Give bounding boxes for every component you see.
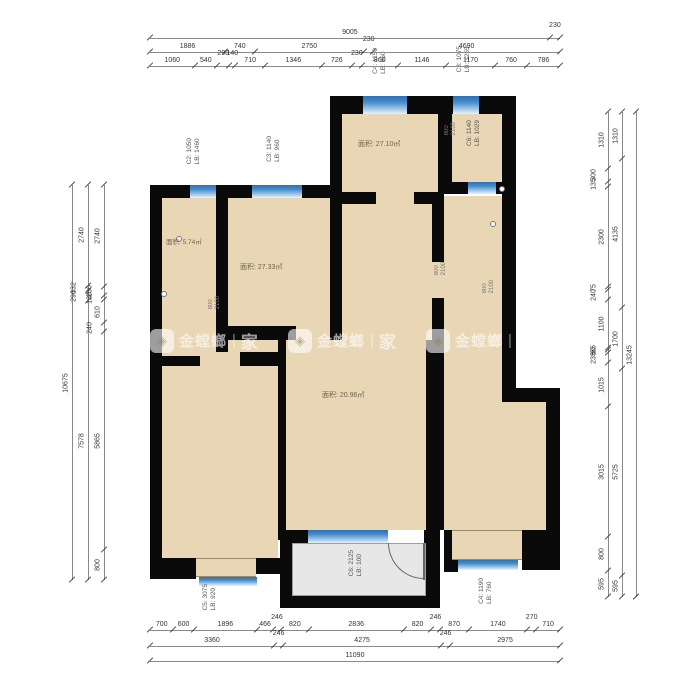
dimension-value: 240 [591,289,598,301]
dimension-tick [69,576,75,582]
dimension-value: 1740 [490,621,506,628]
wall-segment [452,182,468,194]
watermark: ◈ 金螳螂 | 家 [288,328,396,353]
wall-segment [426,530,440,608]
dimension-value: 700 [156,621,168,628]
dimension-value: 600 [178,621,190,628]
door-tag: 8002100 [434,262,448,275]
dimension-value: 246 [271,614,283,621]
dimension-value: 246 [440,630,452,637]
dimension-tick [85,576,91,582]
dimension-value: 235 [591,352,598,364]
dimension-value: 466 [259,621,271,628]
dimension-value: 1886 [180,43,196,50]
bay-ledge-left [196,558,256,577]
dimension-line [88,185,89,580]
bay-ledge-right [452,530,522,560]
window-bottom-right [458,560,518,570]
dimension-value: 860 [374,57,386,64]
wall-segment [432,204,444,262]
dimension-value: 1346 [286,57,302,64]
dimension-value: 710 [244,57,256,64]
wall-segment [407,96,453,114]
room-area-label: 面积: 27.10㎡ [358,139,400,149]
dimension-value: 4275 [354,637,370,644]
dim-row-top-detail: 1060540290140710134672623086011461170760… [150,66,560,67]
dimension-value: 2740 [95,228,102,244]
dim-row-bottom-detail: 7006001896466246820283682024687017402707… [150,630,560,631]
window-top-1 [363,96,407,114]
dimension-value: 240 [87,322,94,334]
dim-col-right-major: 1310413517005725595 [622,112,623,597]
dim-col-right-detail: 1310300135230075240110055602351015301580… [608,112,609,597]
dimension-value: 246 [273,630,285,637]
window-interior-right [468,182,496,194]
dimension-value: 1146 [414,57,429,64]
dimension-tick [619,593,625,599]
door-opening [200,352,240,366]
dimension-value: 1170 [463,57,478,64]
dimension-value: 2836 [348,621,364,628]
dimension-value: 130 [87,292,94,304]
wall-segment [426,340,444,530]
watermark: ◈ 金螳螂 | 家 [426,328,534,353]
wall-segment [282,596,438,608]
watermark-logo-icon: ◈ [150,329,174,353]
dimension-line [622,112,623,597]
dimension-value: 230 [351,50,363,57]
wall-segment [330,114,342,344]
wall-segment [150,185,162,579]
dimension-value: 13245 [627,345,634,364]
fixture-dot [499,186,505,192]
wall-segment [150,558,196,579]
dimension-value: 4135 [613,226,620,242]
room-area-label: 面积: 20.96㎡ [322,390,364,400]
room-area-label: 面积: 5.74㎡ [166,236,202,246]
window-tag: C6: 1140LB: 1029 [466,120,482,146]
window-tag: C3: 1140LB: 960 [266,136,282,162]
door-tag: 8002100 [482,280,496,293]
watermark: ◈ 金螳螂 | 家 [150,328,258,353]
dimension-value: 135 [591,179,598,191]
window-top-2 [453,96,479,114]
window-balcony [308,530,388,543]
wall-segment [342,192,376,204]
room-bedroom-bottom-left [162,366,278,558]
window-tag: C5: 3075LB: 920 [202,584,218,610]
dimension-value: 5865 [95,433,102,449]
window-tag: C6: 2125LB: 100 [348,550,364,576]
dimension-value: 3360 [204,637,220,644]
door-tag: 8002100 [208,296,222,309]
dimension-value: 800 [95,559,102,571]
floor-plan-page: { "colors": { "wall": "#0a0a0a", "room_f… [0,0,700,700]
wall-segment [216,185,252,198]
dimension-value: 1700 [613,331,620,347]
dimension-tick [557,626,563,632]
room-bedroom-top [342,114,438,192]
dimension-value: 595 [599,578,606,590]
wall-segment [330,96,363,114]
dim-row-bottom-overall: 11090 [150,661,560,662]
dimension-value: 726 [331,57,343,64]
dimension-value: 740 [234,43,246,50]
dimension-value: 10675 [63,373,70,392]
dimension-value: 595 [613,580,620,592]
dimension-value: 246 [430,614,442,621]
fixture-dot [490,221,496,227]
dimension-line [150,38,560,39]
dimension-value: 9005 [342,29,358,36]
dim-col-left-detail: 27402301306102405865800 [104,185,105,580]
dimension-value: 11090 [346,652,365,659]
dim-row-bottom-major: 336024642752462975 [150,646,560,647]
dimension-value: 1310 [599,132,606,148]
dimension-line [72,185,73,580]
watermark-logo-icon: ◈ [426,329,450,353]
dimension-tick [557,48,563,54]
dim-col-left-major: 27401322907578 [88,185,89,580]
fixture-dot [161,291,167,297]
dimension-tick [557,642,563,648]
dimension-value: 1015 [599,377,606,393]
dimension-value: 800 [599,548,606,560]
dimension-tick [633,593,639,599]
dimension-line [150,66,560,67]
dimension-value: 786 [538,57,550,64]
room-right [444,196,502,530]
room-right-extension [502,402,546,530]
dimension-value: 1100 [599,316,606,331]
dimension-value: 3015 [599,464,606,480]
dimension-tick [557,657,563,663]
dimension-value: 2975 [497,637,513,644]
dimension-tick [101,576,107,582]
dimension-line [150,661,560,662]
dimension-value: 2740 [79,228,86,244]
dimension-line [150,646,560,647]
wall-segment [546,388,560,536]
dimension-value: 5725 [613,465,620,481]
room-living [286,340,426,530]
dimension-line [104,185,105,580]
dim-col-right-overall: 13245 [636,112,637,597]
dimension-value: 760 [505,57,517,64]
dimension-value: 230 [363,36,375,43]
dim-row-top-overall: 9005230 [150,38,560,39]
dimension-value: 610 [95,306,102,318]
dimension-tick [557,62,563,68]
dimension-value: 540 [200,57,212,64]
dimension-tick [605,593,611,599]
window-tag: C2: 1050LB: 1460 [186,138,202,164]
dimension-value: 1896 [218,621,234,628]
dimension-line [636,112,637,597]
wall-segment [522,524,560,570]
dimension-value: 2750 [302,43,318,50]
dimension-value: 710 [542,621,554,628]
dimension-value: 820 [289,621,301,628]
dimension-value: 2300 [599,229,606,245]
dim-col-left-overall: 10675 [72,185,73,580]
door-opening [376,192,414,204]
dimension-value: 7578 [79,433,86,449]
dimension-value: 870 [448,621,460,628]
hallway [342,204,432,340]
window-bedroom-left [252,185,302,198]
dimension-value: 1310 [613,128,620,144]
room-area-label: 面积: 27.33㎡ [240,262,282,272]
dimension-value: 270 [526,614,538,621]
dimension-line [150,630,560,631]
dimension-value: 1060 [164,57,180,64]
door-leaf [423,543,425,580]
dimension-value: 230 [549,22,561,29]
dimension-value: 290 [71,290,78,302]
watermark-logo-icon: ◈ [288,329,312,353]
dimension-tick [557,34,563,40]
dimension-value: 140 [226,50,238,57]
window-left-small [190,185,216,198]
dimension-value: 4690 [459,43,475,50]
door-tag: 8002100 [444,122,458,135]
window-tag: C4: 1190LB: 760 [478,578,494,604]
dimension-value: 820 [412,621,424,628]
